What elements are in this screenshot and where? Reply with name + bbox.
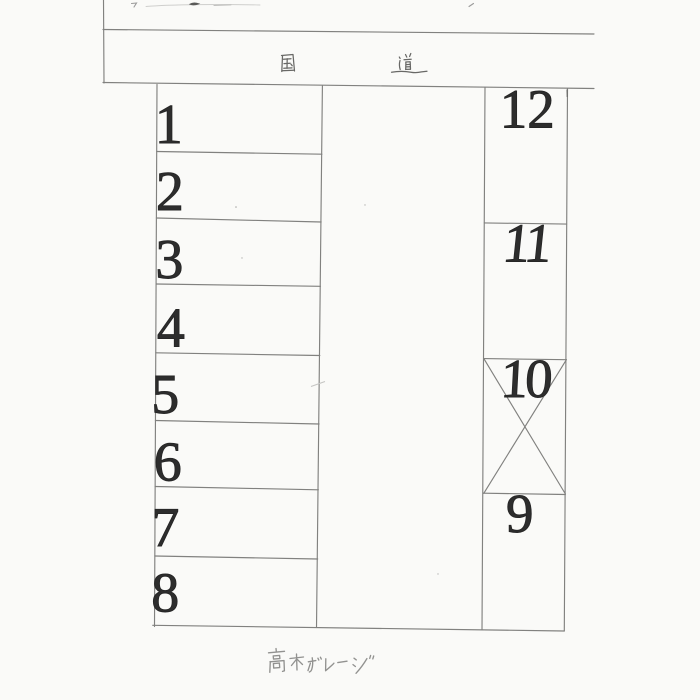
svg-text:4: 4 [157,297,185,359]
svg-text:12: 12 [500,79,555,140]
svg-text:5: 5 [151,364,179,426]
svg-text:2: 2 [156,161,184,223]
svg-text:9: 9 [506,483,534,544]
svg-text:6: 6 [154,432,182,494]
svg-text:8: 8 [151,562,179,624]
svg-text:11: 11 [500,213,553,274]
svg-text:3: 3 [155,229,183,291]
svg-text:7: 7 [151,497,179,559]
svg-text:10: 10 [499,348,553,409]
svg-text:1: 1 [155,94,183,156]
